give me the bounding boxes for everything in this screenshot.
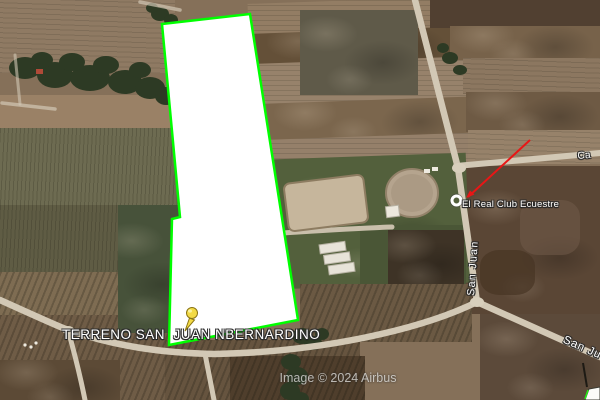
poi-name-label[interactable]: El Real Club Ecuestre bbox=[462, 199, 559, 210]
parcel-polygon-overlay[interactable] bbox=[162, 14, 298, 345]
parcel-name-label[interactable]: TERRENO SAN JUAN NBERNARDINO bbox=[62, 327, 320, 342]
imagery-attribution: Image © 2024 Airbus bbox=[238, 371, 438, 385]
satellite-map[interactable]: TERRENO SAN JUAN NBERNARDINO El Real Clu… bbox=[0, 0, 600, 400]
poi-circle-icon[interactable] bbox=[451, 195, 463, 207]
red-annotation-arrow bbox=[466, 140, 530, 198]
road-label-top-right: Ca bbox=[577, 150, 591, 162]
